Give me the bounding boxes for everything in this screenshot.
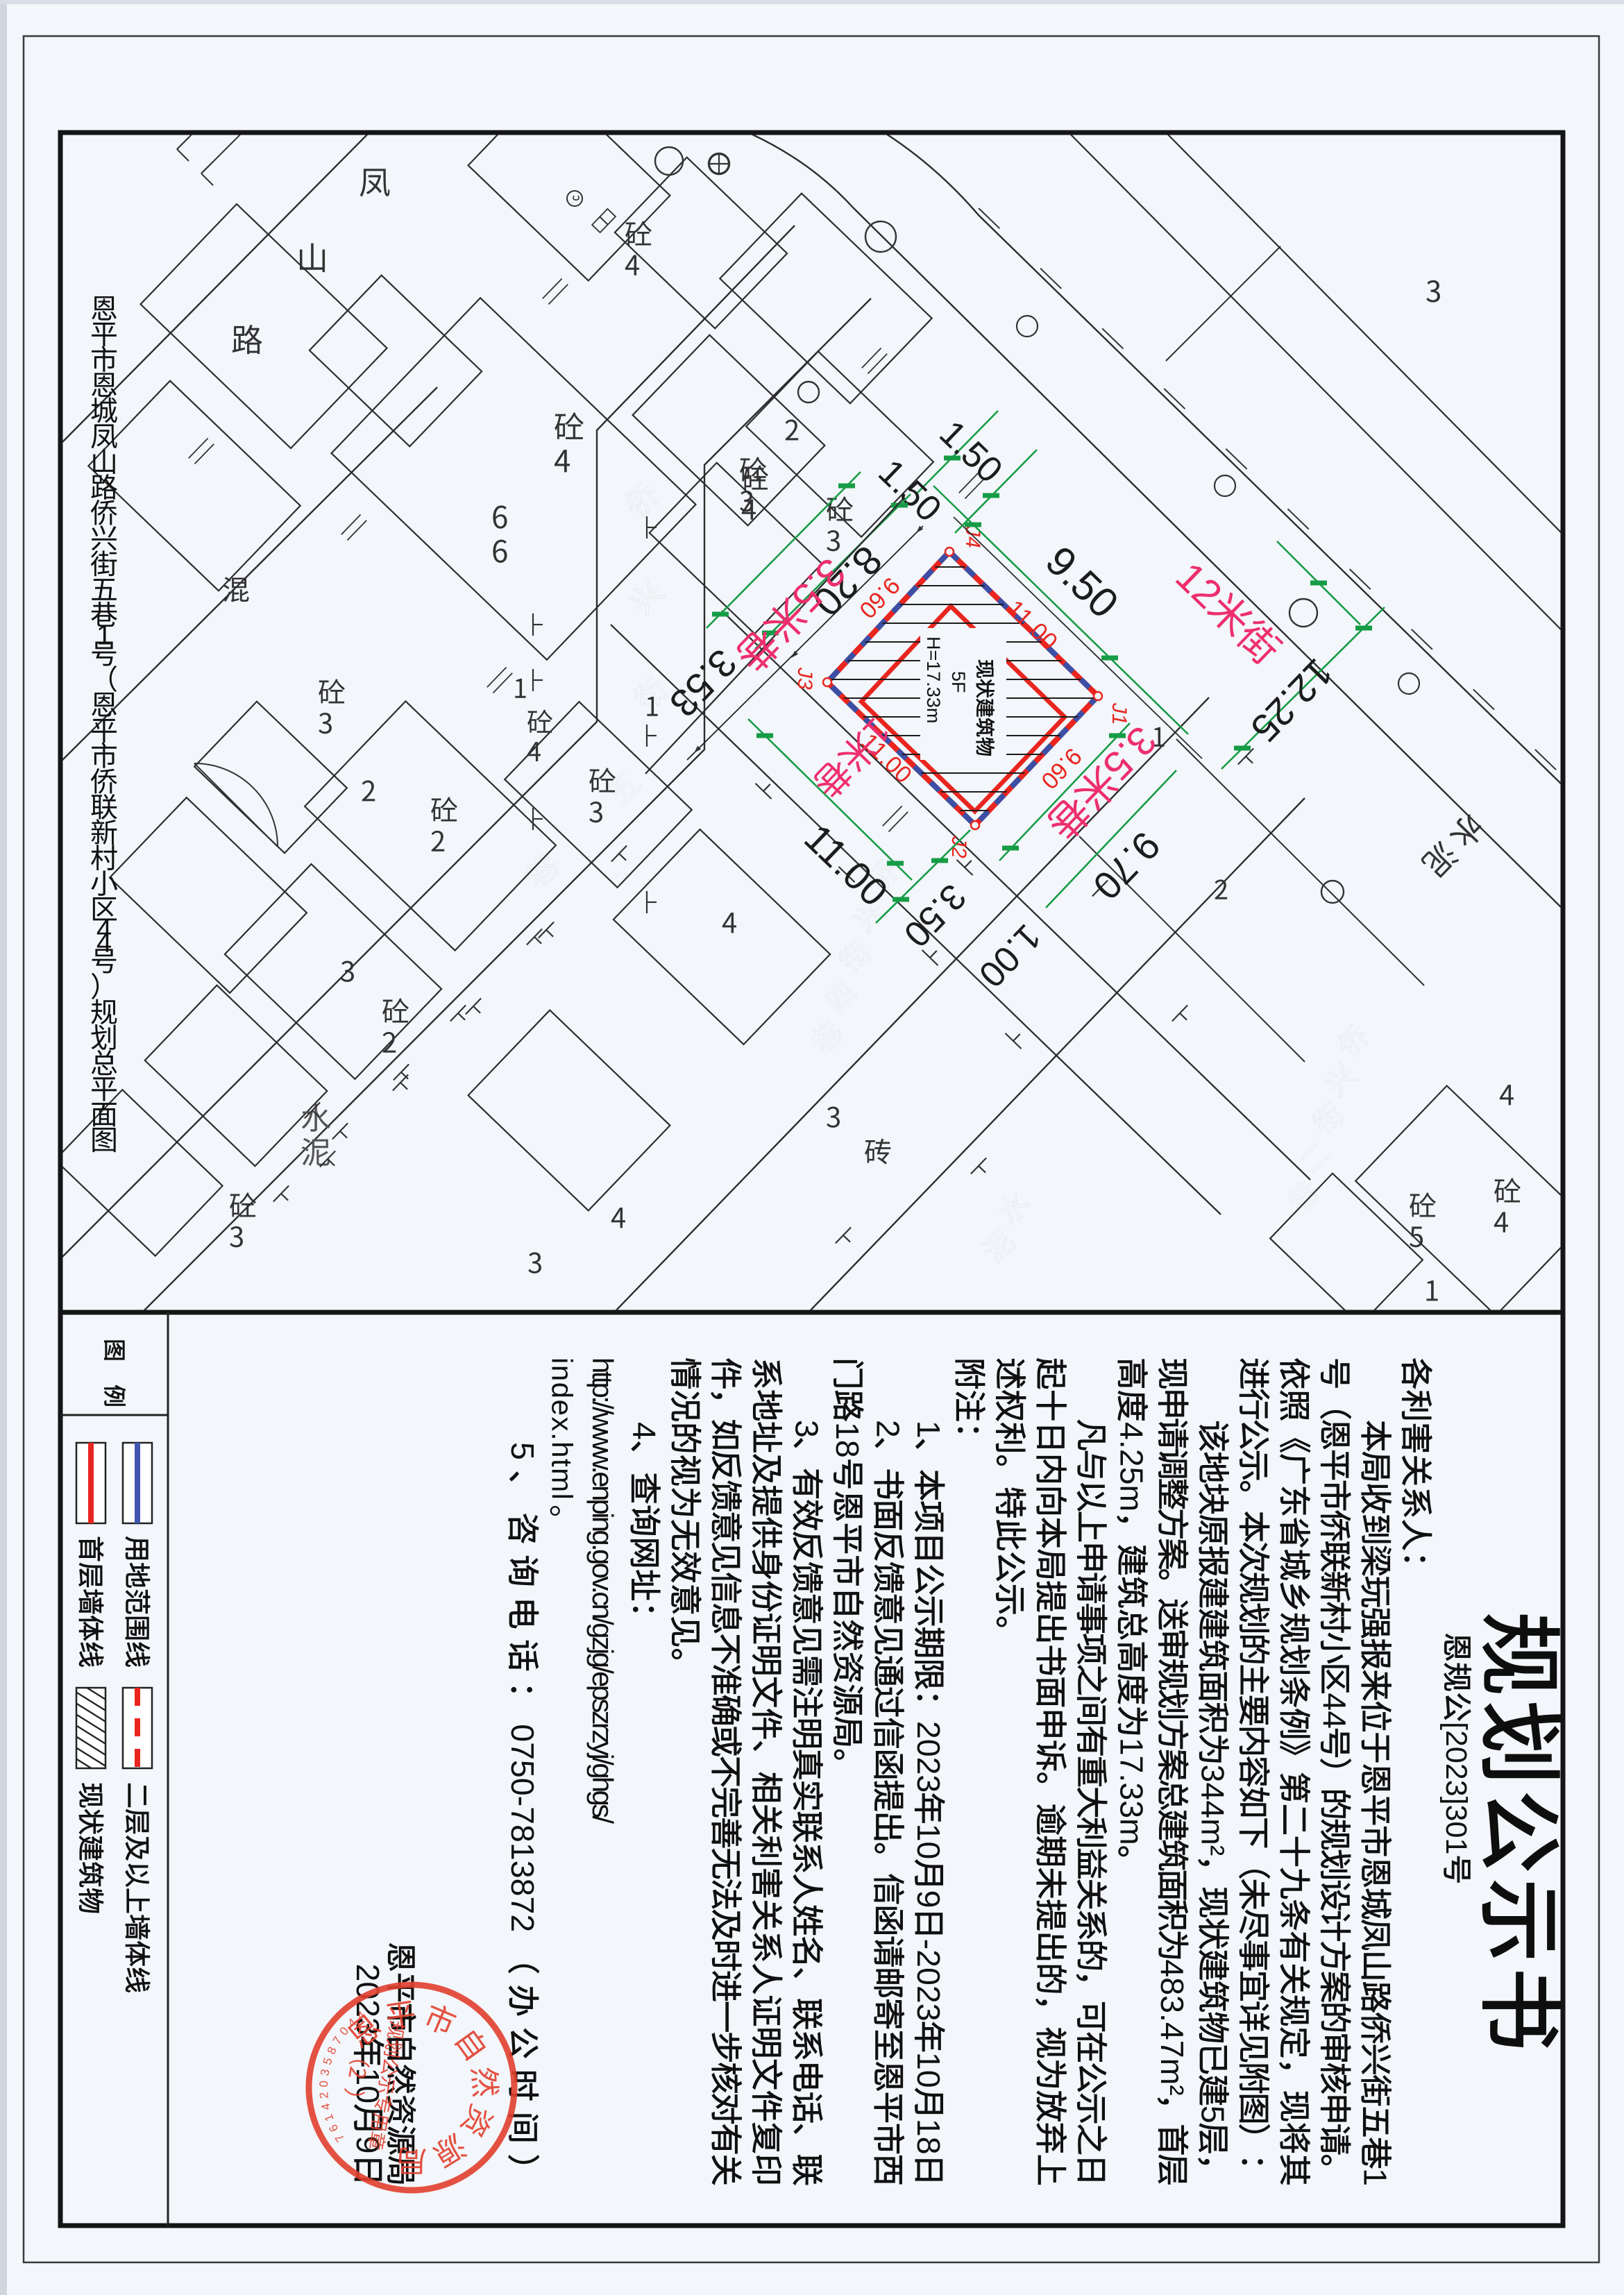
svg-text:18: 18 xyxy=(829,1422,865,1458)
svg-text:0750-7813872: 0750-7813872 xyxy=(505,1724,541,1932)
svg-text:5: 5 xyxy=(505,1442,541,1460)
svg-text:4.25m: 4.25m xyxy=(1114,1422,1150,1511)
svg-text:J2: J2 xyxy=(947,836,970,858)
svg-text:H=17.33m: H=17.33m xyxy=(923,636,944,723)
svg-text:J1: J1 xyxy=(1108,702,1131,725)
svg-text:1: 1 xyxy=(1357,2168,1394,2186)
svg-text:18: 18 xyxy=(911,2119,947,2155)
svg-text:5F: 5F xyxy=(948,671,969,693)
svg-text:[2023]301: [2023]301 xyxy=(1439,1722,1473,1854)
svg-text:5: 5 xyxy=(1195,2106,1231,2124)
svg-text:10: 10 xyxy=(911,1824,947,1860)
svg-text:2023: 2023 xyxy=(911,1721,947,1793)
svg-text:J4: J4 xyxy=(961,525,984,548)
svg-text:J3: J3 xyxy=(793,667,816,690)
svg-text:17.33m: 17.33m xyxy=(1114,1738,1150,1845)
svg-text:10: 10 xyxy=(911,2052,947,2088)
svg-text:483.47m²: 483.47m² xyxy=(1154,1959,1190,2095)
svg-text:0: 0 xyxy=(317,2081,330,2087)
svg-text:1: 1 xyxy=(96,620,112,651)
svg-text:2: 2 xyxy=(870,1420,906,1438)
svg-text:344m²: 344m² xyxy=(1195,1765,1231,1856)
svg-text:1: 1 xyxy=(911,1421,947,1439)
svg-text:9: 9 xyxy=(911,1890,947,1908)
svg-text:-2023: -2023 xyxy=(911,1939,947,2022)
svg-text:http://www.enping.gov.cn/gzjg/: http://www.enping.gov.cn/gzjg/epszrzyj/g… xyxy=(586,1357,619,1824)
svg-text:index.html: index.html xyxy=(546,1357,579,1500)
svg-text:2: 2 xyxy=(317,2092,331,2099)
svg-text:3: 3 xyxy=(789,1420,825,1438)
svg-text:44: 44 xyxy=(1317,1693,1353,1729)
svg-text:4: 4 xyxy=(627,1422,663,1440)
svg-text:4: 4 xyxy=(96,927,112,958)
